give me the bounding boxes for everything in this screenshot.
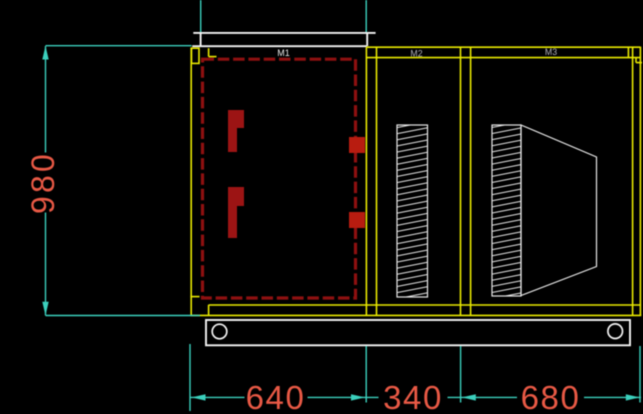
svg-text:M1: M1	[277, 48, 290, 58]
svg-text:640: 640	[246, 379, 306, 414]
svg-text:680: 680	[521, 379, 581, 414]
svg-text:M2: M2	[410, 49, 422, 59]
svg-text:M3: M3	[545, 47, 557, 57]
svg-text:980: 980	[25, 151, 61, 214]
svg-text:340: 340	[383, 379, 443, 414]
